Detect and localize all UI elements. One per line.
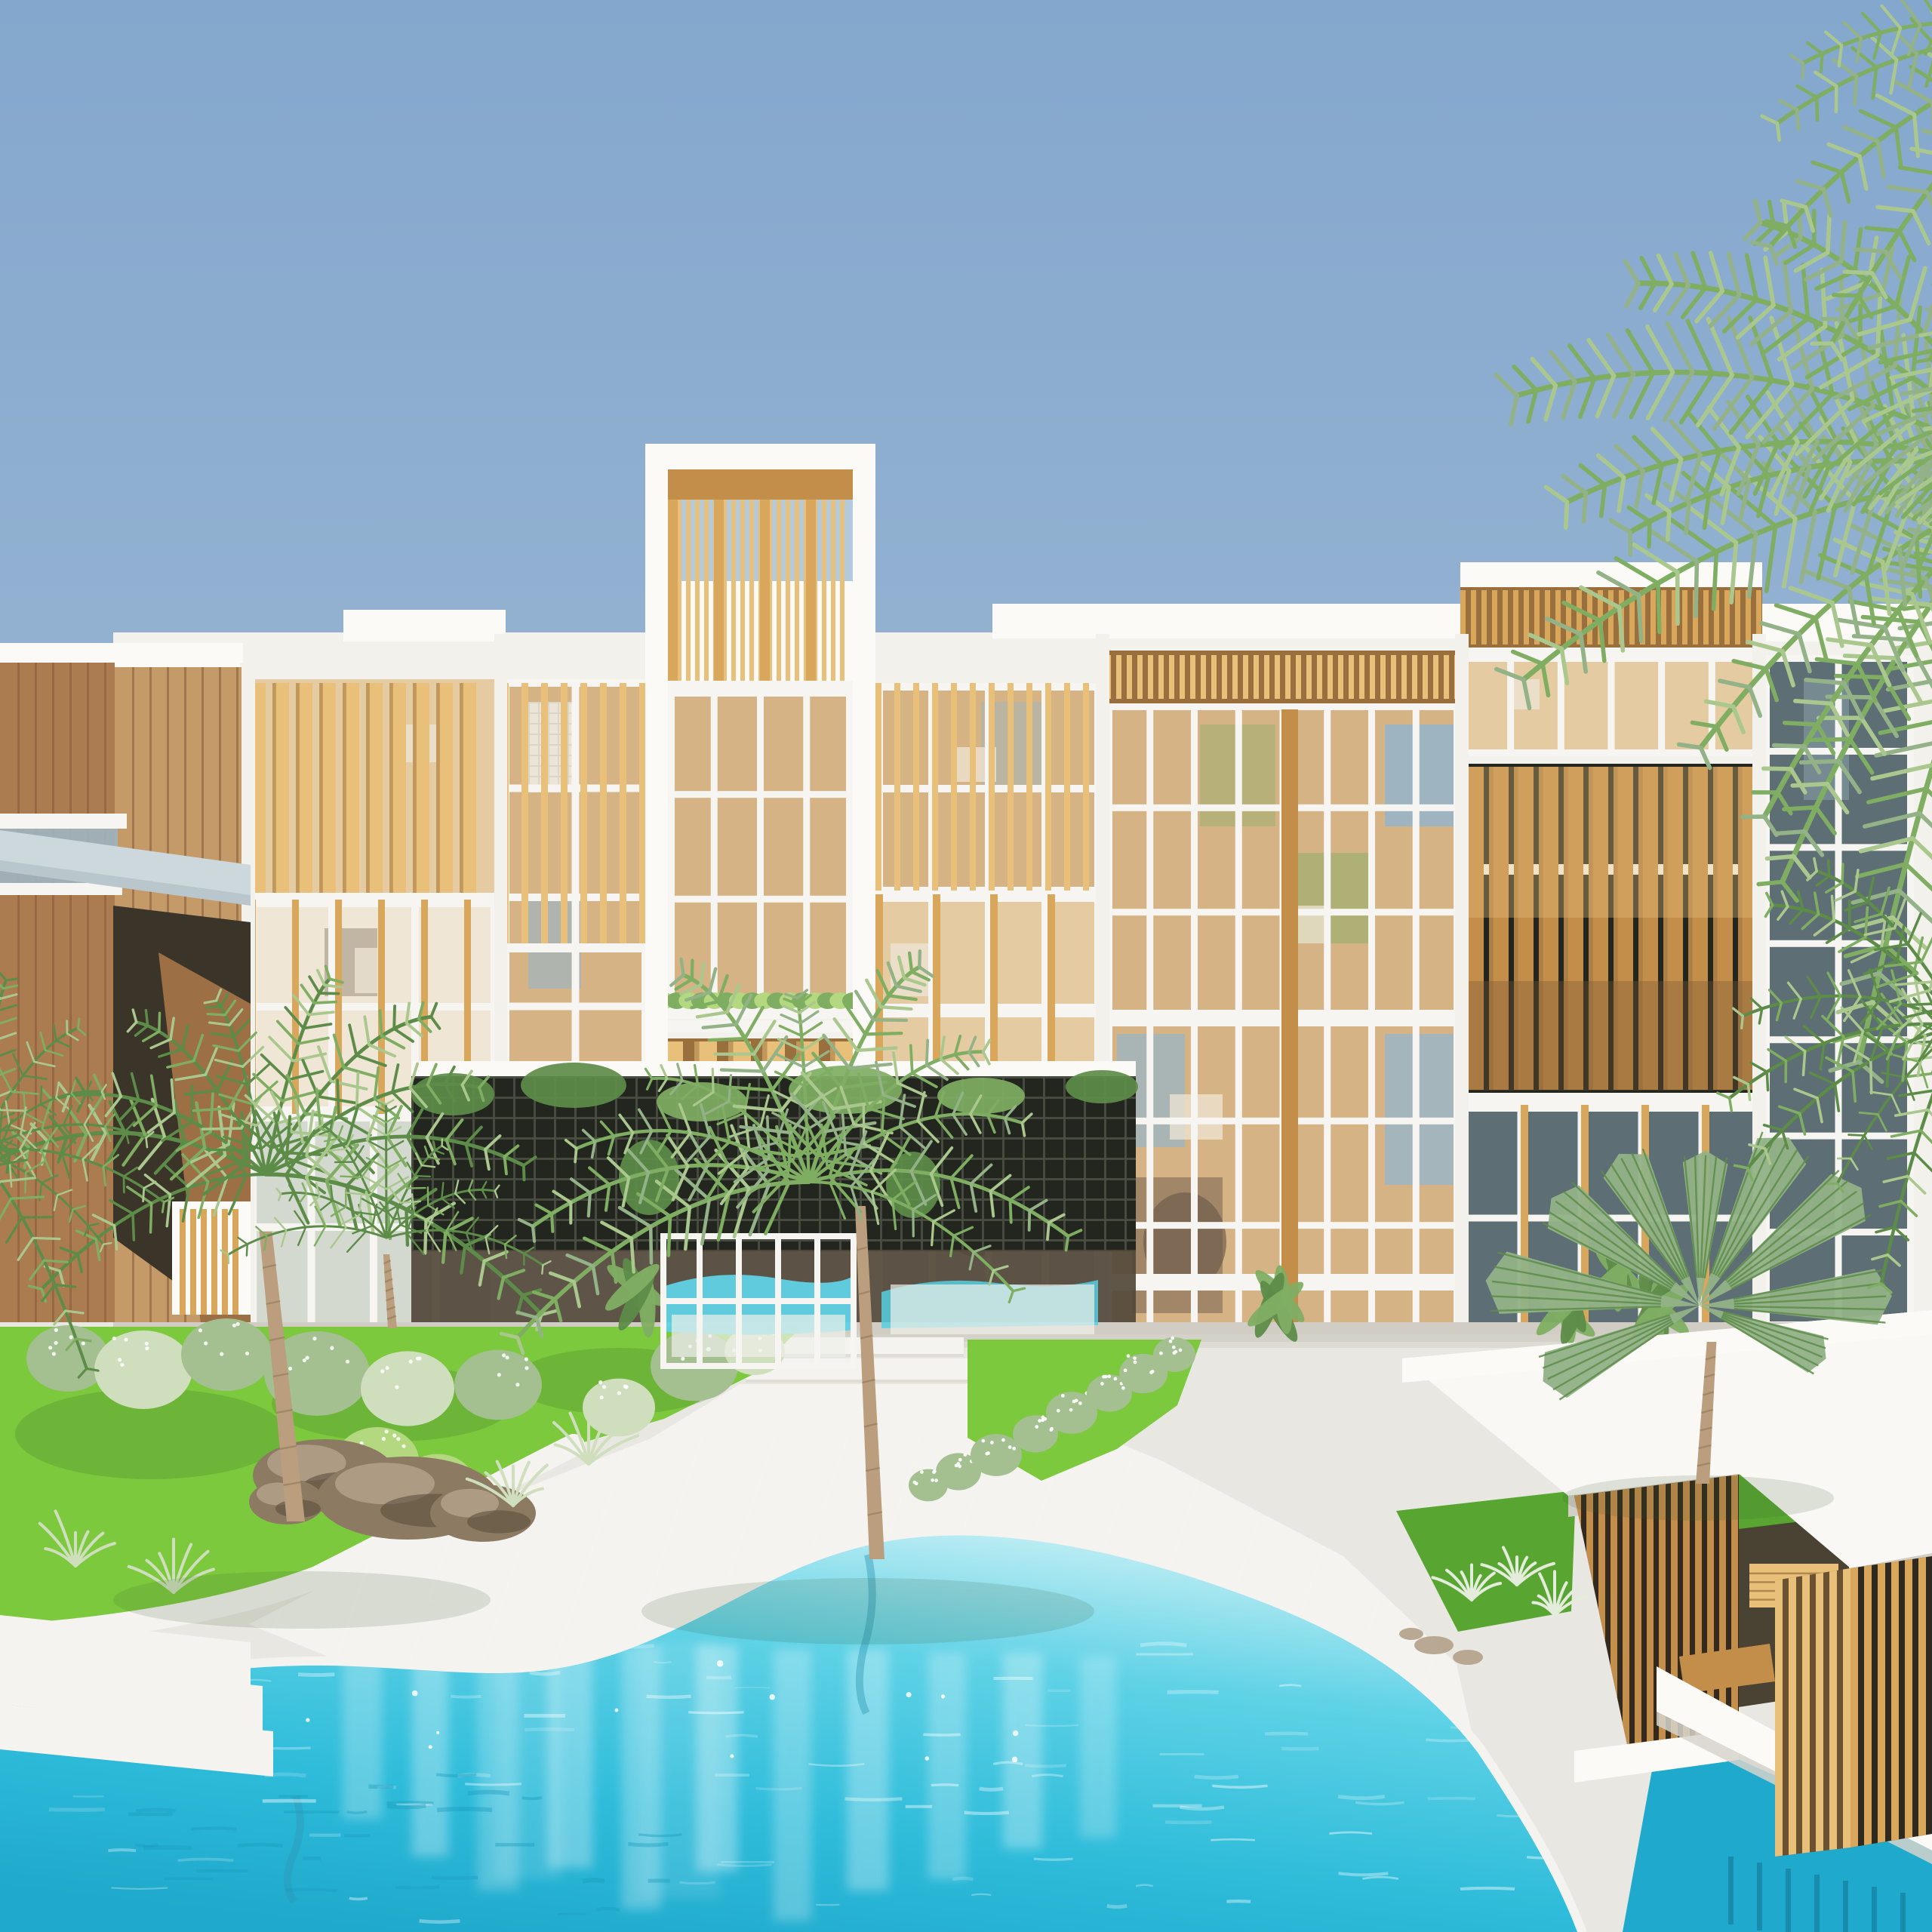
palm-leaflet [881, 1007, 911, 1009]
palm-leaflet [1649, 521, 1650, 546]
bush-flower [145, 1346, 149, 1350]
bush-flower [145, 1342, 149, 1346]
trellis-lattice [411, 1198, 1136, 1201]
facade-louver [1524, 590, 1529, 645]
palm-leaflet [1767, 1072, 1767, 1090]
palm-leaflet [1767, 857, 1793, 859]
shrub-flower [1149, 1371, 1153, 1374]
facade-louver [620, 683, 626, 943]
tower-screen-post [714, 500, 724, 681]
annex-fascia [0, 643, 243, 663]
water-ripple [451, 1697, 481, 1697]
water-ripple [952, 1878, 973, 1880]
water-ripple-dark [347, 1812, 368, 1814]
water-ripple [1165, 1822, 1212, 1823]
bush-flower [330, 1346, 334, 1350]
water-ripple [717, 1865, 771, 1866]
shrub-flower [1035, 1425, 1038, 1429]
shrub-flower [958, 1458, 962, 1462]
facade-louver-shade [460, 683, 463, 893]
water-ripple [1195, 1777, 1238, 1778]
water-ripple-dark [344, 1835, 370, 1836]
palm-leaflet [133, 1214, 134, 1240]
palm-leaflet [337, 1080, 339, 1116]
cabana-screen-slat [1816, 1566, 1823, 1860]
shrub-flower [1179, 1349, 1183, 1352]
palm-leaflet [1774, 746, 1804, 746]
facade-louver [1359, 655, 1364, 699]
facade-louver [1180, 655, 1185, 699]
slat-reflection [1872, 1887, 1877, 1932]
shrub-flower [1061, 1394, 1065, 1398]
palm-leaflet [228, 1254, 229, 1263]
water-ripple [1034, 1859, 1073, 1860]
palm-leaflet [1828, 216, 1829, 252]
bush-flower [416, 1356, 420, 1360]
palm-leaflet [589, 1193, 590, 1217]
water-ripple [1212, 1786, 1267, 1787]
shrub-flower [1159, 1352, 1163, 1355]
annex-balcony-slab [0, 814, 127, 829]
facade-louver [1064, 683, 1070, 891]
bush-flower [600, 1395, 604, 1399]
water-ripple [298, 1675, 334, 1675]
facade-louver [1481, 590, 1487, 645]
shrub-flower [1057, 1409, 1060, 1413]
water-ripple [1025, 1725, 1078, 1726]
shrub-flower [1001, 1438, 1005, 1442]
flower-shrub [971, 1434, 1022, 1476]
palm-leaflet [1668, 512, 1669, 540]
facade-louver [1391, 655, 1396, 699]
bush-flower [346, 1360, 349, 1364]
palm-leaflet [1849, 1135, 1865, 1136]
shrub-flower [1072, 1400, 1076, 1404]
glass-brick-line [528, 702, 530, 792]
glass-brick-line [548, 702, 549, 792]
bush-flower [112, 1337, 116, 1340]
trellis-lattice [1063, 1076, 1066, 1251]
palm-leaflet [1829, 860, 1830, 876]
garden-gate-slat [222, 1209, 228, 1315]
shrub-flower [1127, 1354, 1131, 1358]
architectural-render: Tropical resort apartment complex with c… [0, 0, 1932, 1932]
palm-leaflet [1797, 109, 1798, 129]
window-mullion [1460, 655, 1762, 662]
facade-louver [1285, 655, 1291, 699]
bush-flower [82, 1341, 85, 1345]
glass-brick-line [558, 702, 559, 792]
water-ripple [525, 1729, 574, 1730]
facade-louver-shade [272, 683, 276, 893]
bush-flower [385, 1429, 389, 1433]
slat-reflection [1786, 1869, 1791, 1932]
cabana-screen-slat [1878, 1555, 1885, 1849]
palm-leaflet [1834, 295, 1859, 296]
palm-leaflet [1029, 1211, 1030, 1230]
trellis-vine [1066, 1070, 1138, 1103]
shrub-flower [956, 1462, 960, 1466]
facade-louver [1296, 655, 1301, 699]
facade-louver [1380, 655, 1386, 699]
shrub-flower [1174, 1350, 1177, 1354]
facade-louver [1566, 590, 1571, 645]
trellis-lattice [1043, 1076, 1045, 1251]
facade-louver [1137, 655, 1143, 699]
palm-leaflet [1795, 701, 1831, 703]
water-ripple [971, 1894, 991, 1895]
bush-flower [617, 1391, 621, 1395]
trellis-lattice [493, 1076, 495, 1251]
facade-louver [1555, 590, 1561, 645]
tower-mullion [668, 690, 675, 1004]
palm-leaflet [932, 1222, 934, 1245]
trellis-lattice [1023, 1076, 1025, 1251]
facade-louver [1513, 590, 1518, 645]
bush-flower [401, 1444, 405, 1448]
water-ripple-dark [432, 1878, 478, 1878]
shade-overlay [1464, 981, 1760, 1091]
water-ripple [964, 1813, 1009, 1814]
facade-louver [1232, 655, 1238, 699]
water-ripple [1025, 1765, 1066, 1766]
palm-leaflet [1714, 552, 1717, 609]
palm-leaflet [1801, 761, 1839, 763]
palm-leaflet [524, 1165, 525, 1180]
palm-leaflet [340, 1177, 361, 1177]
plank-joint [52, 655, 54, 1338]
palm-leaflet [212, 1149, 254, 1150]
shrub-flower [1107, 1374, 1111, 1378]
palm-leaflet [1856, 249, 1886, 251]
facade-louver [951, 683, 957, 891]
palm-leaflet [1845, 656, 1896, 658]
water-ripple-dark [238, 1844, 283, 1846]
tower-screen-post [668, 500, 678, 681]
shrub-flower [934, 1478, 938, 1482]
water-sparkle [614, 1709, 618, 1712]
garden-bush [361, 1351, 454, 1426]
water-ripple [734, 1687, 770, 1688]
facade-louver [1327, 655, 1333, 699]
palm-leaflet [6, 979, 17, 980]
scene-canvas [0, 0, 1932, 1932]
water-ripple [349, 1898, 368, 1899]
water-ripple-dark [628, 1844, 668, 1845]
water-ripple-dark [638, 1835, 681, 1836]
water-sparkle [306, 1718, 309, 1721]
palm-leaflet [11, 1197, 44, 1198]
facade-louver [1169, 655, 1174, 699]
cabana-screen-slat [1864, 1555, 1872, 1849]
water-ripple-dark [136, 1810, 175, 1811]
shrub-flower [1134, 1361, 1137, 1364]
facade-louver [1338, 655, 1343, 699]
water-ripple-dark [395, 1887, 439, 1887]
palm-leaflet [1777, 123, 1780, 140]
palm-leaflet [1686, 503, 1689, 534]
palm-leaflet [380, 1011, 381, 1036]
water-ripple-dark [191, 1828, 236, 1829]
bush-flower [204, 1341, 208, 1345]
palm-leaflet [1817, 97, 1817, 120]
tower-mullion [803, 690, 810, 1004]
building-reflection [1080, 1657, 1116, 1838]
water-ripple [1211, 1839, 1255, 1840]
facade-louver [1661, 590, 1666, 645]
palm-leaflet [44, 1260, 67, 1262]
palm-leaflet [314, 1002, 336, 1004]
facade-louver [1423, 655, 1428, 699]
palm-shadow [641, 1578, 1094, 1644]
deck-pebble [1399, 1628, 1423, 1640]
trellis-beam [411, 1061, 1136, 1076]
palm-leaflet [575, 1149, 577, 1162]
water-sparkle [1012, 1757, 1017, 1762]
trellis-vine [521, 1063, 626, 1108]
tower-screen-slat [831, 500, 835, 681]
tower-screen-slat [777, 500, 781, 681]
bush-flower [396, 1437, 400, 1441]
window-mullion [1460, 749, 1762, 756]
water-ripple [756, 1789, 802, 1789]
water-sparkle [941, 1694, 945, 1698]
palm-leaflet [1803, 1051, 1804, 1075]
facade-louver [600, 683, 607, 943]
water-ripple [1281, 1749, 1318, 1749]
bush-flower [54, 1341, 57, 1345]
water-ripple [980, 1789, 1003, 1790]
shrub-flower [1102, 1375, 1106, 1379]
facade-louver [1317, 655, 1322, 699]
facade-louver [989, 683, 995, 891]
palm-leaflet [1842, 864, 1843, 883]
facade-louver [1724, 590, 1730, 645]
facade-louver [1444, 655, 1449, 699]
tower-soffit [668, 469, 853, 500]
facade-louver-shade [366, 683, 370, 893]
plank-joint [69, 655, 72, 1338]
palm-leaflet [873, 1020, 906, 1020]
water-ripple [1338, 1873, 1388, 1875]
water-ripple [1428, 1798, 1475, 1799]
palm-leaflet [146, 1138, 147, 1147]
bush-flower [598, 1380, 602, 1384]
facade-louver [1703, 590, 1709, 645]
facade-louver [1243, 655, 1248, 699]
water-sparkle [906, 1692, 912, 1697]
palm-leaflet [41, 1086, 42, 1104]
shrub-flower [1114, 1377, 1118, 1381]
tower-planter-slab [659, 1020, 858, 1032]
palm-leaflet [1742, 1016, 1743, 1028]
palm-leaflet [206, 1007, 220, 1008]
bush-flower [120, 1363, 124, 1367]
bush-flower [52, 1352, 56, 1355]
water-ripple-dark [468, 1792, 509, 1794]
palm-leaflet [1748, 1084, 1749, 1100]
facade-louver-shade [436, 683, 440, 893]
roof-parapet [992, 604, 1479, 638]
tower-mullion [757, 690, 764, 1004]
glass-brick-line [538, 702, 540, 792]
palm-leaflet [927, 1040, 928, 1065]
facade-louver [1158, 655, 1164, 699]
bush-flower [409, 1360, 413, 1364]
tower-screen-post [760, 500, 770, 681]
palm-leaflet [415, 1176, 430, 1177]
palm-leaflet [1583, 493, 1586, 521]
shrub-flower [1008, 1445, 1012, 1449]
facade-louver [1306, 655, 1312, 699]
garden-gate-slat [211, 1209, 217, 1315]
deck-pebble [1414, 1636, 1454, 1654]
bush-flower [245, 1352, 249, 1355]
facade-louver [1735, 590, 1740, 645]
cabana-screen-slat [1802, 1566, 1810, 1860]
facade-louver-shade [296, 683, 300, 893]
facade-louver [932, 683, 938, 891]
deck-pebble [1453, 1650, 1483, 1665]
tower-screen-slat [740, 500, 745, 681]
shrub-flower [1100, 1382, 1104, 1386]
facade-louver [1222, 655, 1227, 699]
tower-mullion [668, 690, 853, 697]
palm-leaflet [504, 1157, 506, 1174]
palm-leaflet [533, 1226, 534, 1241]
facade-louver [1492, 590, 1497, 645]
water-ripple [688, 1712, 743, 1713]
palm-leaflet [319, 993, 338, 994]
facade-louver [1008, 683, 1014, 891]
tower-screen-slat [704, 500, 709, 681]
bush-flower [506, 1355, 509, 1359]
shrub-flower [1050, 1427, 1054, 1431]
slat-reflection [1728, 1857, 1734, 1924]
lobby-mullion [660, 1363, 857, 1369]
lobby-deck-reflection [891, 1284, 1094, 1334]
building-reflection [774, 1649, 811, 1921]
shrub-flower [933, 1469, 937, 1473]
cabana-screen-slat [1843, 1566, 1850, 1860]
plank-joint [35, 655, 37, 1338]
water-ripple [1180, 1807, 1223, 1809]
facade-pilaster [1752, 634, 1766, 1343]
facade-louver-shade [389, 683, 393, 893]
bush-flower [124, 1337, 128, 1341]
water-ripple-dark [143, 1847, 192, 1848]
bush-flower [312, 1337, 316, 1340]
facade-louver [1211, 655, 1217, 699]
palm-leaflet [162, 1202, 164, 1213]
water-ripple-dark [583, 1880, 605, 1881]
bush-flower [288, 1367, 292, 1371]
balcony-slab [502, 943, 649, 952]
water-ripple-dark [436, 1774, 476, 1776]
bush-flower [382, 1437, 386, 1441]
flower-shrub [909, 1469, 948, 1502]
bush-flower [395, 1386, 398, 1389]
facade-louver [1503, 590, 1508, 645]
tower-screen-slat [840, 500, 844, 681]
water-ripple-dark [386, 1802, 433, 1803]
bush-flower [525, 1366, 528, 1370]
water-sparkle [769, 1694, 774, 1700]
water-sparkle [436, 1731, 439, 1734]
bush-flower [386, 1366, 389, 1370]
water-ripple [923, 1734, 960, 1735]
window-mullion [1507, 655, 1514, 756]
facade-louver [894, 683, 900, 891]
trellis-lattice [411, 1239, 1136, 1241]
cabana-screen-slat [1829, 1566, 1837, 1860]
palm-shadow [113, 1571, 491, 1629]
cabana-screen-bg [1775, 1568, 1850, 1857]
palm-leaflet [143, 1188, 144, 1201]
tower-screen-slat [731, 500, 736, 681]
water-ripple [1140, 1644, 1186, 1645]
shrub-flower [1078, 1401, 1082, 1405]
facade-louver [521, 683, 528, 943]
facade-louver [378, 900, 385, 1114]
facade-louver [1190, 655, 1195, 699]
palm-leaflet [1764, 768, 1791, 769]
palm-leaflet [1854, 76, 1856, 104]
bush-flower [54, 1328, 58, 1332]
water-ripple [845, 1798, 903, 1799]
shrub-flower [1069, 1408, 1073, 1412]
facade-louver [1471, 590, 1476, 645]
facade-louver [639, 683, 646, 943]
water-ripple [178, 1859, 234, 1860]
palm-leaflet [1638, 595, 1641, 641]
facade-louver-shade [343, 683, 346, 893]
wood-post [1281, 709, 1298, 1328]
facade-louver [1116, 655, 1121, 699]
shrub-flower [1121, 1386, 1125, 1390]
water-ripple-dark [387, 1806, 426, 1807]
facade-louver [1026, 683, 1032, 891]
palm-leaflet [1658, 583, 1660, 632]
building-reflection [638, 1641, 721, 1898]
shrub-flower [963, 1453, 967, 1457]
water-ripple [49, 1810, 105, 1810]
water-ripple-dark [522, 1798, 542, 1798]
trellis-lattice [411, 1076, 1136, 1078]
palm-leaflet [712, 1069, 713, 1092]
glass-panel [1460, 648, 1762, 655]
facade-louver [1264, 655, 1269, 699]
facade-louver [1370, 655, 1375, 699]
cabana-screen-slat [1789, 1566, 1796, 1860]
palm-leaflet [1836, 676, 1884, 678]
garden-gate-slat [180, 1209, 186, 1315]
facade-louver [913, 683, 919, 891]
bush-flower [623, 1385, 627, 1389]
tower-screen-slat [686, 500, 691, 681]
facade-louver [1275, 655, 1280, 699]
palm-leaflet [408, 1188, 425, 1189]
palm-leaflet [632, 1238, 634, 1272]
tower-screen-slat [822, 500, 826, 681]
palm-leaflet [721, 1070, 763, 1072]
palm-leaflet [1010, 1200, 1011, 1223]
palm-leaflet [866, 1033, 902, 1034]
trellis-lattice [1084, 1076, 1086, 1251]
bush-flower [303, 1358, 306, 1362]
trellis-lattice [1124, 1076, 1127, 1251]
left-annex-building [0, 643, 251, 1338]
